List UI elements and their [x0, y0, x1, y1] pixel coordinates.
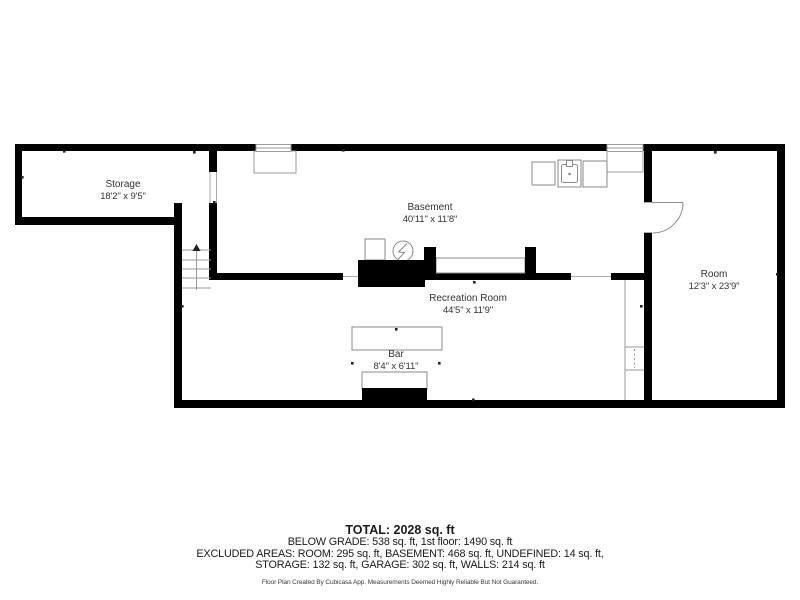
wall-room-left-upper [644, 144, 652, 202]
window-well [254, 151, 296, 173]
wall-storage-left [15, 144, 22, 225]
room-dimensions: 8'4" x 6'11" [374, 361, 419, 373]
room-dimensions: 44'5" x 11'9" [429, 305, 507, 317]
counter-outline [436, 258, 525, 273]
utility-fixtures [365, 239, 413, 261]
window-well [607, 151, 643, 172]
disclaimer-text: Floor Plan Created By Cubicasa App. Meas… [0, 579, 800, 587]
dimension-tick [640, 305, 643, 308]
floor-plan-page: Storage 18'2" x 9'5" Basement 40'11" x 1… [0, 0, 800, 600]
wall-room-left-lower [644, 232, 652, 408]
total-area-line: TOTAL: 2028 sq. ft [0, 523, 800, 537]
room-name: Storage [100, 179, 146, 191]
dimension-tick [342, 149, 345, 152]
room-label-storage: Storage 18'2" x 9'5" [100, 179, 146, 203]
appliance-square [583, 161, 607, 187]
wall-top [15, 144, 785, 151]
wall-bottom [174, 400, 785, 408]
dimension-tick [21, 176, 24, 179]
bar-back-unit [362, 372, 427, 389]
dimension-tick [213, 201, 216, 204]
sink-faucet [567, 161, 573, 167]
below-grade-line: BELOW GRADE: 538 sq. ft, 1st floor: 1490… [0, 537, 800, 549]
dimension-tick [181, 305, 184, 308]
dimension-tick [63, 150, 66, 153]
stair-direction-arrow-icon [193, 244, 201, 251]
excluded-areas-line-2: STORAGE: 132 sq. ft, GARAGE: 302 sq. ft,… [0, 560, 800, 572]
dimension-tick [473, 281, 476, 284]
door-arc [653, 203, 684, 234]
dimension-tick [776, 273, 779, 276]
wall-right [777, 144, 785, 408]
bar-back-unit-base [362, 388, 427, 400]
area-summary: TOTAL: 2028 sq. ft BELOW GRADE: 538 sq. … [0, 523, 800, 587]
appliance-square [532, 162, 555, 185]
room-label-room: Room 12'3" x 23'9" [689, 269, 740, 293]
dimension-tick [714, 151, 717, 154]
dimension-tick [193, 151, 196, 154]
floor-plan-drawing [0, 0, 800, 600]
room-dimensions: 18'2" x 9'5" [100, 191, 146, 203]
staircase [182, 244, 211, 290]
wall-storage-divider-upper [209, 144, 217, 172]
wall-basement-recreation-1 [217, 273, 343, 280]
water-heater-icon [393, 241, 413, 261]
wall-storage-bottom [15, 217, 182, 225]
counter-wall-stub [424, 247, 436, 273]
kitchen-fixtures [532, 160, 607, 187]
room-name: Recreation Room [429, 293, 507, 305]
sink-drain [568, 173, 571, 176]
counter-wall-stub [525, 247, 536, 273]
chimney-block [358, 260, 425, 287]
room-name: Basement [403, 202, 458, 214]
wall-recreation-left [174, 203, 182, 408]
dimension-tick [395, 328, 398, 331]
room-name: Room [689, 269, 740, 281]
room-label-recreation-room: Recreation Room 44'5" x 11'9" [429, 293, 507, 317]
wall-storage-divider-lower [209, 203, 217, 280]
door-swing-arc [652, 203, 683, 234]
closet-shelf [625, 280, 644, 400]
appliance-square [365, 239, 385, 260]
dimension-tick [351, 362, 354, 365]
dimension-tick [438, 362, 441, 365]
room-dimensions: 40'11" x 11'8" [403, 214, 458, 226]
room-label-basement: Basement 40'11" x 11'8" [403, 202, 458, 226]
room-name: Bar [374, 349, 419, 361]
dimension-tick [472, 399, 475, 402]
room-label-bar: Bar 8'4" x 6'11" [374, 349, 419, 373]
room-dimensions: 12'3" x 23'9" [689, 281, 740, 293]
